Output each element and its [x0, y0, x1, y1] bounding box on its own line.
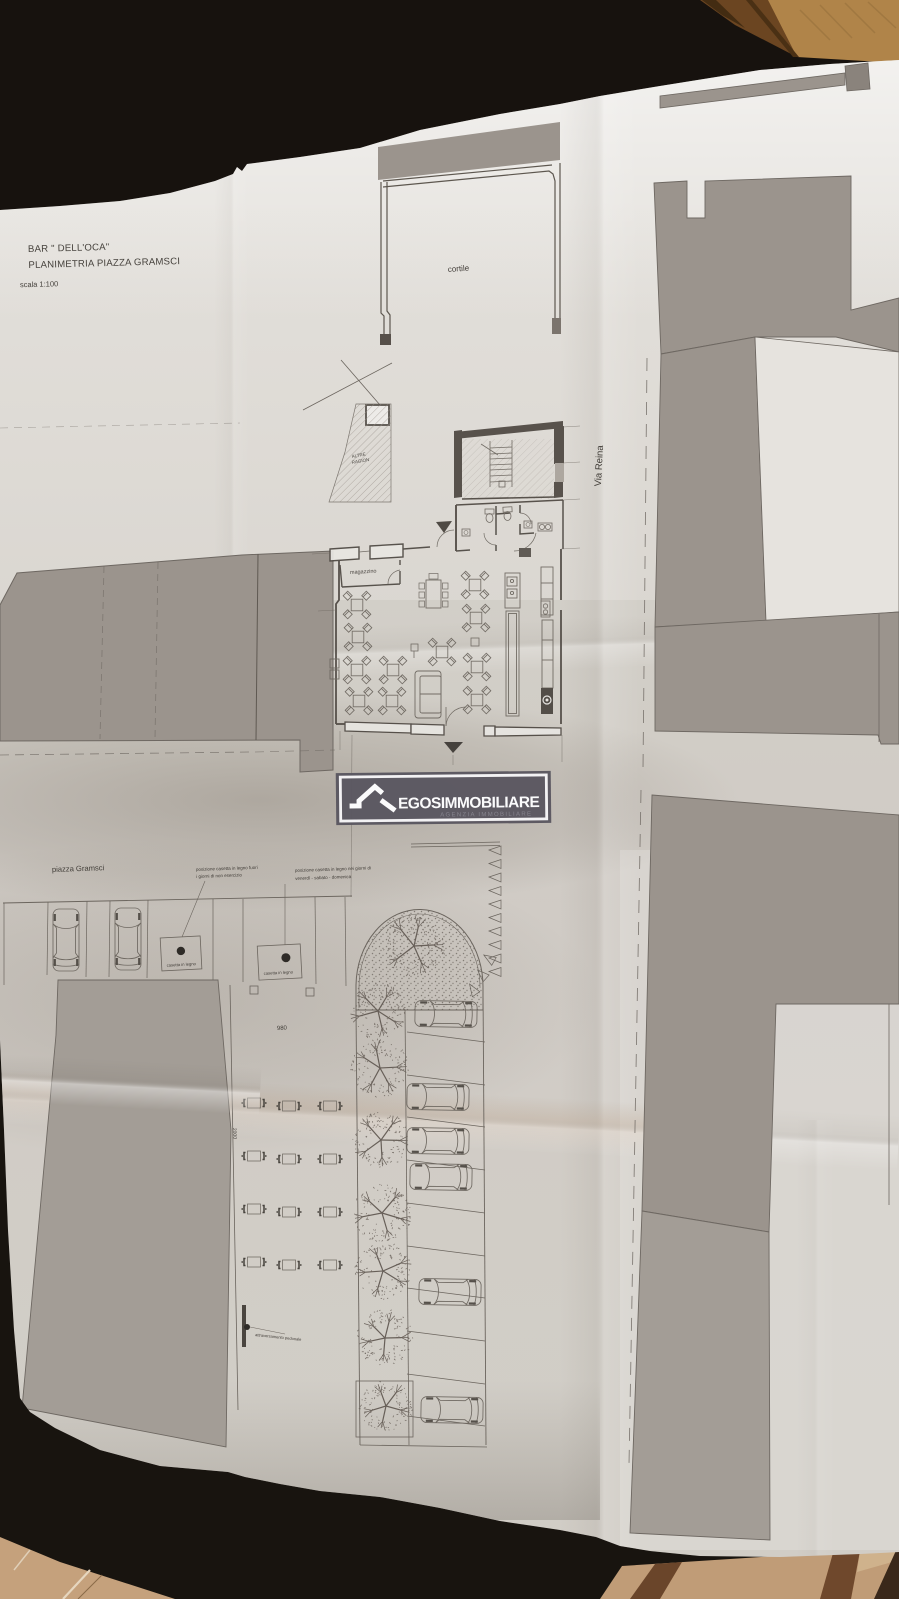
svg-text:AGENZIA IMMOBILIARE: AGENZIA IMMOBILIARE [440, 812, 532, 819]
svg-text:2000: 2000 [231, 1128, 238, 1140]
svg-text:Via Reina: Via Reina [593, 444, 606, 486]
svg-text:piazza Gramsci: piazza Gramsci [52, 863, 105, 874]
svg-text:980: 980 [277, 1025, 288, 1032]
svg-text:cortile: cortile [448, 263, 470, 274]
svg-text:EGOSIMMOBILIARE: EGOSIMMOBILIARE [398, 794, 540, 812]
svg-text:BAR " DELL'OCA": BAR " DELL'OCA" [28, 242, 110, 255]
svg-text:scala 1:100: scala 1:100 [20, 279, 59, 289]
